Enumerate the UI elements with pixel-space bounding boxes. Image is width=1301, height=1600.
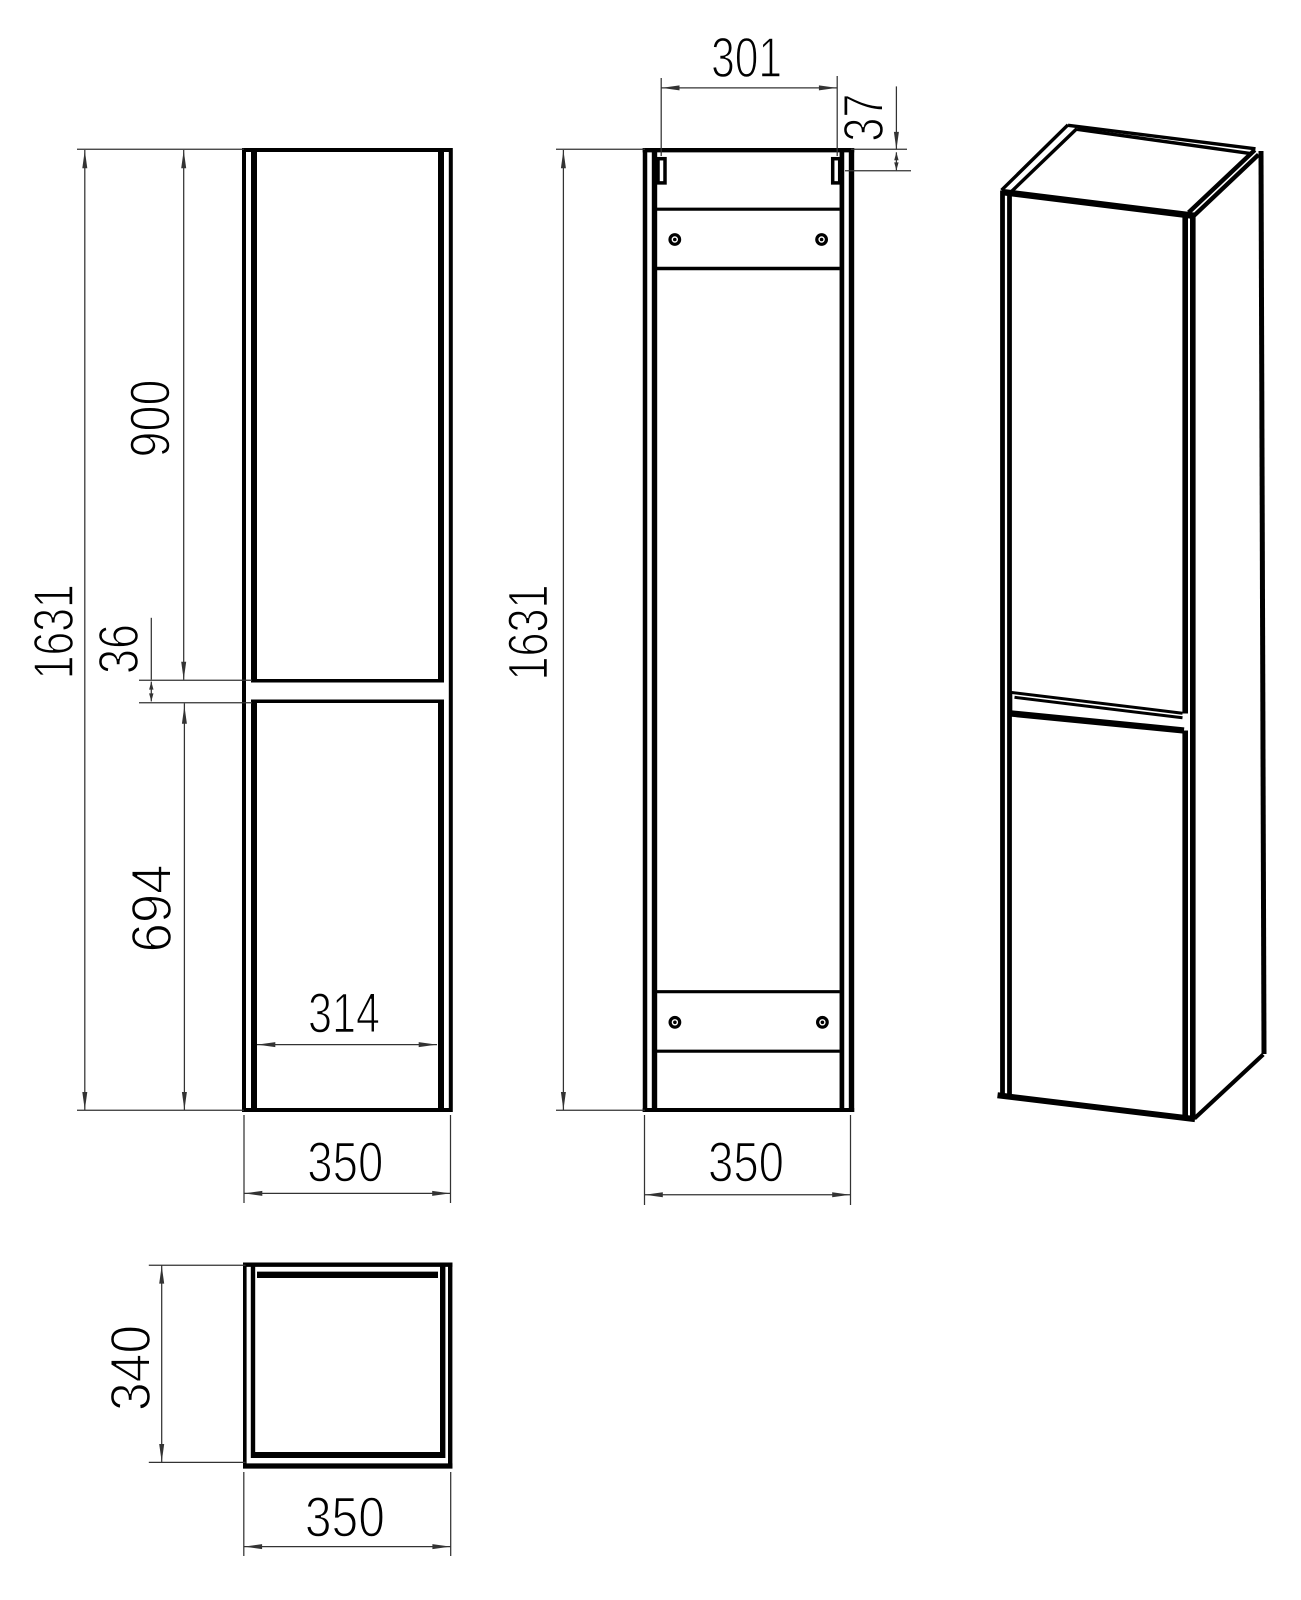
- svg-text:350: 350: [708, 1131, 784, 1194]
- svg-text:694: 694: [120, 865, 183, 953]
- svg-text:1631: 1631: [497, 585, 560, 681]
- svg-text:350: 350: [307, 1131, 383, 1194]
- svg-text:301: 301: [711, 26, 782, 89]
- svg-text:36: 36: [87, 624, 150, 674]
- svg-text:314: 314: [308, 981, 380, 1044]
- svg-text:340: 340: [99, 1325, 162, 1411]
- svg-text:900: 900: [119, 380, 182, 458]
- svg-text:1631: 1631: [22, 584, 85, 679]
- svg-text:37: 37: [832, 94, 895, 142]
- svg-text:350: 350: [305, 1486, 385, 1549]
